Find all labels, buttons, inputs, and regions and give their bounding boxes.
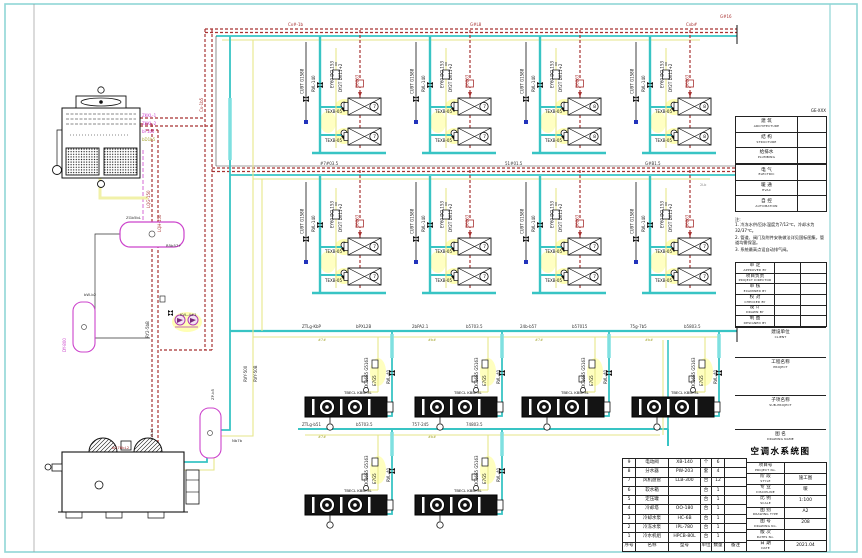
pipe-label: b5803.5 [684, 324, 701, 329]
project-block: 工程名称 PROJECT [735, 357, 826, 369]
equipment-row: 8 分水器 PW-203 套 4 [623, 468, 747, 477]
drawing-sheet: CU9T G1588 RVL-140 EY60 DCL153 DY2T DX11… [0, 0, 862, 558]
review-en: DESIGNED BY [736, 322, 774, 325]
equipment-name: 冷却塔 [636, 505, 669, 514]
signoff-row: 建 筑ARCHITECTURE [736, 117, 827, 133]
equipment-header: 名称 [636, 542, 669, 551]
pipe-label: RY2-5bB [145, 321, 150, 338]
fan-unit-group [305, 331, 395, 430]
pipe-label: 2Lb [700, 183, 707, 187]
signoff-row: 暖 通HVAC [736, 180, 827, 196]
equipment-row: 5 定压罐 台 1 [623, 496, 747, 505]
note-item: 3. 系统最高点设自动排气阀。 [735, 247, 826, 252]
pipe-label: b57015 [572, 324, 588, 329]
unit-badge: 7 [483, 104, 486, 110]
review-en: DRAWN BY [736, 311, 774, 314]
equipment-remark [725, 468, 747, 477]
fan-unit-group [305, 429, 395, 528]
unit-badge: 8 [593, 104, 596, 110]
equipment-unit: 台 [701, 486, 712, 495]
unit-badge: 7 [373, 274, 376, 280]
info-value: 2021.04 [785, 540, 827, 551]
info-value: 1:100 [785, 496, 827, 507]
equipment-model [669, 496, 701, 505]
equipment-header: 序号 [623, 542, 636, 551]
unit-badge: 8 [703, 134, 706, 140]
review-blank-cell [801, 273, 827, 284]
cooling-tower [53, 87, 141, 188]
equipment-unit: 套 [701, 468, 712, 477]
review-blank-cell [775, 273, 801, 284]
review-en: CHECKED BY [736, 301, 774, 304]
equipment-name: 软水箱 [636, 486, 669, 495]
client-en: CLIENT [735, 335, 826, 339]
equipment-header-row: 序号 名称 型号 单位 数量 备注 [623, 542, 747, 551]
equipment-no: 4 [623, 505, 636, 514]
signoff-en: ARCHITECTURE [736, 125, 797, 128]
pipe-label: G#L8 [470, 22, 482, 27]
info-label-en: DRAWING TYPE [747, 513, 784, 516]
equipment-qty: 1 [712, 524, 725, 533]
info-label-en: DRAWING No. [747, 525, 784, 528]
info-row: 图 号DRAWING No. 208 [747, 518, 827, 529]
pipe-label: 75g-7b5 [630, 324, 647, 329]
fan-unit-group [415, 331, 505, 430]
signoff-en: HVAC [736, 189, 797, 192]
review-row: 项目负责PROJECT DIRECTOR [736, 273, 827, 284]
equipment-qty: 1 [712, 505, 725, 514]
info-value [785, 529, 827, 540]
unit-badge: 7 [483, 244, 486, 250]
pipe-label: bPXL2B [356, 324, 371, 329]
fan-unit-group [415, 429, 505, 528]
drawing-name-en: DRAWING NAME [735, 437, 826, 441]
equipment-name: 定压罐 [636, 496, 669, 505]
equipment-remark [725, 477, 747, 486]
pipe-label: 757-245 [412, 422, 429, 427]
info-label-en: DISCIPLINE [747, 491, 784, 494]
unit-badge: 7 [483, 274, 486, 280]
review-row: 审 定APPROVED BY [736, 263, 827, 274]
signoff-row: 结 构STRUCTURE [736, 132, 827, 148]
signoff-blank-cell [798, 165, 827, 181]
equipment-remark [725, 459, 747, 468]
equipment-no: 7 [623, 477, 636, 486]
equipment-row: 7 风机盘管 LLB-300 台 12 [623, 477, 747, 486]
note-item: 2. 管道、阀门及附件安装做法详见国标图集，管道均需保温。 [735, 235, 826, 246]
subproject-en: SUB-PROJECT [735, 403, 826, 407]
pipe-label: 74803.5 [466, 422, 483, 427]
info-label-en: PROJECT No. [747, 469, 784, 472]
fan-unit-group [522, 331, 612, 430]
pipe-label: #7# [535, 338, 543, 342]
info-value: A2 [785, 507, 827, 518]
pipe-label: 24b-b57 [520, 324, 537, 329]
equipment-name: 冷水机组 [636, 533, 669, 542]
pipe-label: RVY-500 [243, 365, 248, 382]
chiller [45, 438, 199, 518]
review-blank-cell [775, 305, 801, 316]
tank-label: bW-b2 [84, 292, 97, 297]
pipe-label: #b# [645, 338, 653, 342]
info-row: 专 业DISCIPLINE 暖 [747, 485, 827, 496]
equipment-row: 9 电动阀 XB-140 个 6 [623, 459, 747, 468]
equipment-no: 9 [623, 459, 636, 468]
pipe-label: KVLb1 [149, 427, 154, 440]
equipment-no: 5 [623, 496, 636, 505]
equipment-no: 3 [623, 514, 636, 523]
equipment-row: 2 冷冻水泵 IPL-780 台 1 [623, 524, 747, 533]
signoff-ref: GE-XXX [735, 108, 826, 113]
review-blank-cell [775, 294, 801, 305]
drawing-title: 空调水系统图 [735, 445, 826, 457]
signoff-blank-cell [798, 196, 827, 212]
signoff-blank-cell [798, 132, 827, 148]
review-blank-cell [775, 263, 801, 274]
equipment-unit: 台 [701, 514, 712, 523]
signoff-row: 电 气ELECTRIC [736, 165, 827, 181]
unit-badge: 7 [593, 274, 596, 280]
review-en: EXAMINED BY [736, 290, 774, 293]
info-label-en: DATES No. [747, 536, 784, 539]
pipe-label: ZTLg-b51 [302, 422, 321, 427]
review-row: 审 核EXAMINED BY [736, 284, 827, 295]
subproject-block: 子项名称 SUB-PROJECT [735, 395, 826, 407]
unit-badge: 8 [593, 134, 596, 140]
pipe-label: ZTLg-KbP [302, 324, 322, 329]
tank-label: ZGb5bL [126, 215, 142, 220]
equipment-unit: 台 [701, 533, 712, 542]
equipment-remark [725, 486, 747, 495]
review-row: 制 图DESIGNED BY [736, 316, 827, 327]
fan-unit-group [632, 331, 722, 430]
unit-badge: 7 [703, 244, 706, 250]
unit-badge: 7 [703, 274, 706, 280]
equipment-remark [725, 514, 747, 523]
equipment-unit: 台 [701, 505, 712, 514]
tank-label: R5b57+ [166, 243, 181, 248]
review-blank-cell [801, 294, 827, 305]
info-table: 项目号PROJECT No. 阶 段STYLE 施工图 专 业DISCIPLIN… [746, 462, 826, 552]
equipment-unit: 台 [701, 477, 712, 486]
pipe-label: Cxb# [686, 22, 698, 27]
review-blank-cell [801, 284, 827, 295]
equipment-qty: 1 [712, 533, 725, 542]
tank-label: DY-800 [62, 338, 67, 352]
review-table: 审 定APPROVED BY 项目负责PROJECT DIRECTOR 审 核E… [735, 262, 826, 327]
pipe-label: Cx#-1b [288, 22, 304, 27]
tower-label: ZKKL-1 [142, 113, 157, 118]
equipment-model: HPCB-80L [669, 533, 701, 542]
review-en: APPROVED BY [736, 269, 774, 272]
review-blank-cell [775, 284, 801, 295]
equipment-row: 6 软水箱 台 1 [623, 486, 747, 495]
equipment-model: PW-203 [669, 468, 701, 477]
equipment-qty: 6 [712, 459, 725, 468]
info-label-en: DATE [747, 547, 784, 550]
pipe-label: #b# [428, 435, 436, 439]
info-row: 项目号PROJECT No. [747, 463, 827, 474]
pump-label: KVL-4#1 [180, 312, 197, 317]
client-block: 建设单位 CLIENT [735, 327, 826, 339]
equipment-name: 风机盘管 [636, 477, 669, 486]
equipment-row: 1 冷水机组 HPCB-80L 台 1 [623, 533, 747, 542]
unit-badge: 8 [703, 104, 706, 110]
equipment-header: 数量 [712, 542, 725, 551]
buffer-tank [200, 408, 221, 458]
pipe-label: G#B1.5 [645, 161, 661, 166]
unit-badge: 7 [483, 134, 486, 140]
equipment-qty: 12 [712, 477, 725, 486]
signoff-blank-cell [798, 180, 827, 196]
info-value: 施工图 [785, 474, 827, 485]
pipe-label: #7# [318, 435, 326, 439]
info-value: 暖 [785, 485, 827, 496]
equipment-remark [725, 505, 747, 514]
pipe-label: Cx-1b5 [199, 97, 204, 112]
info-row: 阶 段STYLE 施工图 [747, 474, 827, 485]
review-row: 设 计DRAWN BY [736, 305, 827, 316]
signoff-en: AUTOMATION [736, 205, 797, 208]
equipment-no: 8 [623, 468, 636, 477]
equipment-no: 1 [623, 533, 636, 542]
unit-badge: 7 [373, 244, 376, 250]
pipe-label: 51#01.5 [505, 161, 523, 166]
equipment-remark [725, 496, 747, 505]
note-item: 1. 冷冻水供/回水温度为7/12℃，冷却水为32/37℃。 [735, 222, 826, 233]
equipment-model: XB-140 [669, 459, 701, 468]
equipment-schedule-table: 9 电动阀 XB-140 个 6 8 分水器 PW-203 套 4 [622, 458, 746, 552]
pipe-label: 2bPA2.1 [412, 324, 429, 329]
pipe-label: G#16 [720, 14, 732, 19]
pipe-label: #b# [428, 338, 436, 342]
equipment-header: 备注 [725, 542, 747, 551]
equipment-model [669, 486, 701, 495]
project-en: PROJECT [735, 365, 826, 369]
info-value: 208 [785, 518, 827, 529]
equipment-row: 3 冷却水泵 HC-6B 台 1 [623, 514, 747, 523]
main-headers [205, 25, 737, 446]
review-blank-cell [801, 316, 827, 327]
info-label-en: STYLE [747, 480, 784, 483]
equipment-unit: 个 [701, 459, 712, 468]
signoff-en: ELECTRIC [736, 173, 797, 176]
signoff-en: PLUMBING [736, 156, 797, 159]
review-en: PROJECT DIRECTOR [736, 279, 774, 282]
equipment-qty: 1 [712, 496, 725, 505]
equipment-row: 4 冷却塔 OO-180 台 1 [623, 505, 747, 514]
signoff-en: STRUCTURE [736, 141, 797, 144]
equipment-qty: 1 [712, 486, 725, 495]
pipe-label: LQG-150 [146, 190, 151, 208]
equipment-unit: 台 [701, 524, 712, 533]
equipment-model: LLB-300 [669, 477, 701, 486]
equipment-header: 型号 [669, 542, 701, 551]
pipe-label: Nb7b [232, 438, 243, 443]
pipe-label: #7# [318, 338, 326, 342]
equipment-header: 单位 [701, 542, 712, 551]
drawing-name-block: 图 名 DRAWING NAME 空调水系统图 [735, 429, 826, 457]
equipment-name: 电动阀 [636, 459, 669, 468]
info-row: 比 例SCALE 1:100 [747, 496, 827, 507]
equipment-name: 冷冻水泵 [636, 524, 669, 533]
equipment-remark [725, 524, 747, 533]
pipe-label: b5703.5 [356, 422, 373, 427]
equipment-model: HC-6B [669, 514, 701, 523]
info-value [785, 463, 827, 474]
equipment-model: IPL-780 [669, 524, 701, 533]
chiller-label: bG78bL2 [112, 445, 130, 450]
signoff-row: 自 控AUTOMATION [736, 196, 827, 212]
discipline-signoff-table: 建 筑ARCHITECTURE 结 构STRUCTURE 给排水PLUMBING [735, 116, 826, 212]
review-blank-cell [801, 263, 827, 274]
expansion-tank [73, 302, 95, 352]
equipment-no: 2 [623, 524, 636, 533]
equipment-model: OO-180 [669, 505, 701, 514]
riser-pipes [95, 29, 262, 470]
pipe-label: RVY-50B [253, 365, 258, 382]
tower-label: ZKKL-2 [142, 121, 157, 126]
equipment-no: 6 [623, 486, 636, 495]
review-blank-cell [775, 316, 801, 327]
info-row: 版 次DATES No. [747, 529, 827, 540]
equipment-name: 冷却水泵 [636, 514, 669, 523]
pipe-label: b5703.5 [466, 324, 483, 329]
review-row: 校 对CHECKED BY [736, 294, 827, 305]
tower-label: bD1b5 [142, 137, 156, 142]
equipment-remark [725, 533, 747, 542]
signoff-blank-cell [798, 117, 827, 133]
equipment-qty: 4 [712, 468, 725, 477]
tower-label: bF1b5 [142, 129, 155, 134]
signoff-blank-cell [798, 148, 827, 164]
notes-block: 注: 1. 冷冻水供/回水温度为7/12℃，冷却水为32/37℃。2. 管道、阀… [735, 217, 826, 254]
unit-badge: 7 [373, 134, 376, 140]
pipe-label: LQH-150 [157, 214, 162, 232]
info-label-en: SCALE [747, 502, 784, 505]
info-row: 日 期DATE 2021.04 [747, 540, 827, 551]
equipment-unit: 台 [701, 496, 712, 505]
info-row: 图 别DRAWING TYPE A2 [747, 507, 827, 518]
equipment-name: 分水器 [636, 468, 669, 477]
unit-badge: 7 [373, 104, 376, 110]
tank-label: ZP-b5 [210, 388, 215, 400]
unit-badge: 7 [593, 244, 596, 250]
pipe-label: #7#03.5 [320, 161, 339, 166]
review-blank-cell [801, 305, 827, 316]
equipment-qty: 1 [712, 514, 725, 523]
signoff-row: 给排水PLUMBING [736, 148, 827, 164]
